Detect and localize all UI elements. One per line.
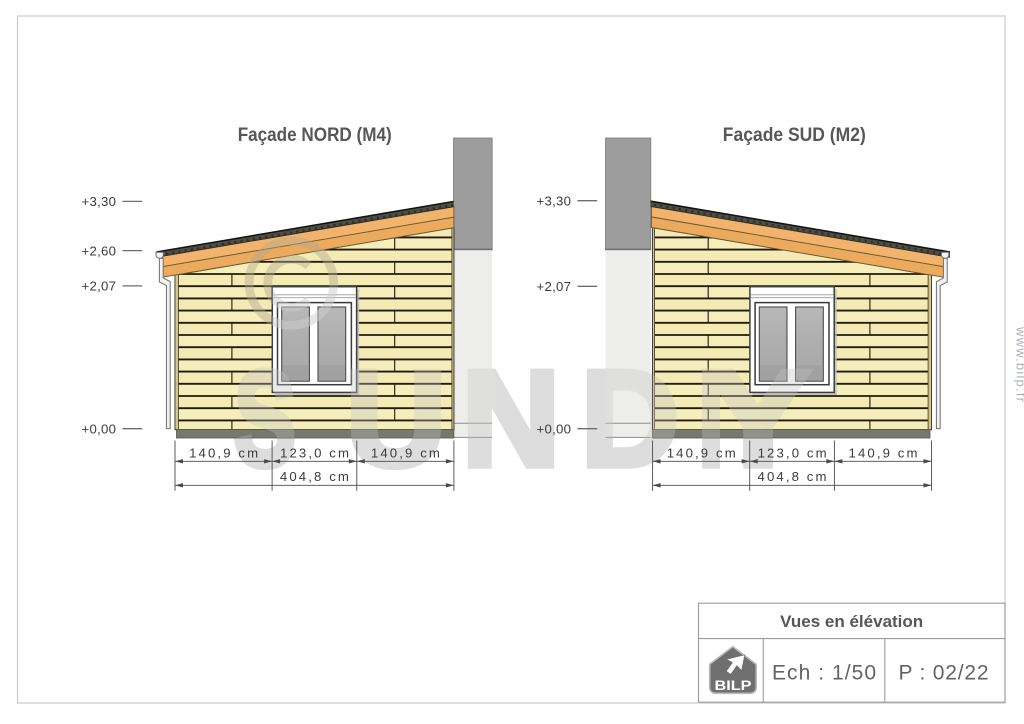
- svg-text:www.bilp.fr: www.bilp.fr: [1014, 326, 1024, 403]
- svg-text:404,8 cm: 404,8 cm: [758, 469, 827, 484]
- svg-text:P : 02/22: P : 02/22: [899, 662, 989, 685]
- svg-text:+2,60: +2,60: [82, 243, 117, 258]
- svg-text:Ech : 1/50: Ech : 1/50: [772, 662, 876, 685]
- svg-text:140,9 cm: 140,9 cm: [371, 446, 440, 461]
- svg-text:Façade NORD (M4): Façade NORD (M4): [238, 124, 392, 146]
- svg-text:+3,30: +3,30: [82, 194, 117, 209]
- svg-text:+2,07: +2,07: [82, 279, 117, 294]
- svg-text:Façade SUD (M2): Façade SUD (M2): [723, 124, 866, 146]
- svg-text:123,0 cm: 123,0 cm: [280, 446, 349, 461]
- svg-text:Vues en élévation: Vues en élévation: [780, 613, 923, 631]
- svg-text:+0,00: +0,00: [82, 421, 117, 436]
- svg-text:+0,00: +0,00: [537, 421, 572, 436]
- svg-text:404,8 cm: 404,8 cm: [280, 469, 349, 484]
- svg-text:140,9 cm: 140,9 cm: [849, 446, 918, 461]
- svg-text:123,0 cm: 123,0 cm: [758, 446, 827, 461]
- svg-text:+2,07: +2,07: [537, 279, 572, 294]
- svg-text:BILP: BILP: [715, 678, 752, 693]
- svg-text:+3,30: +3,30: [537, 193, 572, 208]
- svg-text:140,9 cm: 140,9 cm: [189, 446, 258, 461]
- svg-text:140,9 cm: 140,9 cm: [667, 446, 736, 461]
